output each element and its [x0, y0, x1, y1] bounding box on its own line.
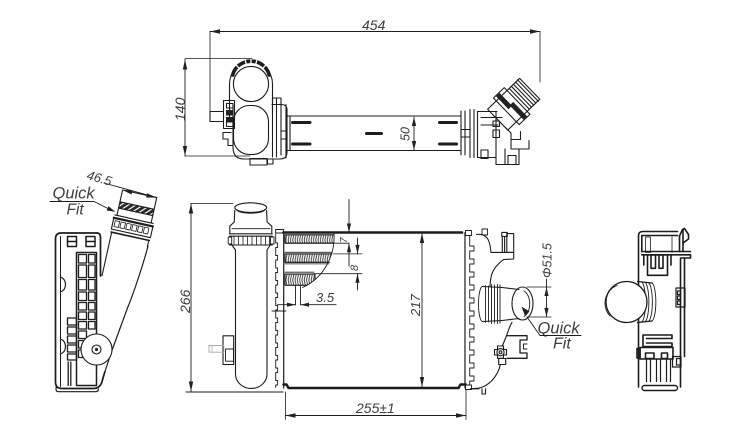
svg-text:7: 7	[339, 237, 350, 243]
svg-text:255±1: 255±1	[355, 400, 395, 416]
svg-text:Quick: Quick	[53, 185, 96, 203]
svg-text:50: 50	[399, 127, 413, 141]
svg-text:140: 140	[172, 97, 188, 121]
svg-text:8: 8	[349, 264, 361, 271]
svg-text:Fit: Fit	[553, 336, 571, 353]
svg-text:217: 217	[408, 294, 423, 317]
svg-text:Φ51.5: Φ51.5	[541, 243, 555, 278]
svg-text:3.5: 3.5	[316, 290, 335, 305]
svg-text:Fit: Fit	[67, 202, 85, 219]
svg-text:266: 266	[177, 289, 193, 314]
svg-text:454: 454	[362, 17, 386, 33]
